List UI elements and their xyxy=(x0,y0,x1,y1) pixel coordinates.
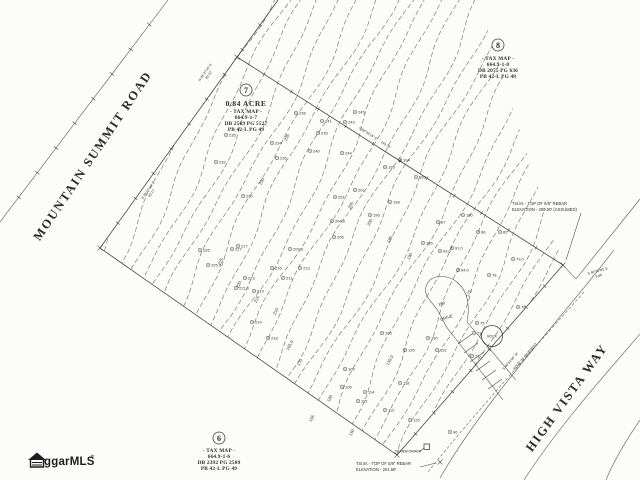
spot-elevation-value: 217 xyxy=(241,244,248,249)
tbm-upper-line1: T.B.M. - TOP OF 5/8" REBAR xyxy=(512,201,567,206)
spot-elevation-value: 216 xyxy=(275,266,282,271)
contour-line xyxy=(0,0,220,480)
survey-tick xyxy=(134,197,138,200)
contour-line xyxy=(117,0,380,480)
contour-elevation-label: 155 xyxy=(308,413,316,422)
bearing-northeast-text: S 50°36'15" E xyxy=(358,126,378,141)
spot-elevation-value: 227 xyxy=(235,247,242,252)
contour-line xyxy=(314,0,573,480)
road-name-mountain-summit: MOUNTAIN SUMMIT ROAD xyxy=(31,68,155,243)
survey-plat-sheet: ROCK TRANSFORMER 23824123923424023623523… xyxy=(0,0,640,480)
spot-elevation-dot xyxy=(370,215,371,216)
survey-tick xyxy=(187,123,191,126)
topographic-contours xyxy=(0,0,640,480)
contour-line xyxy=(19,0,279,480)
spot-elevation-dot xyxy=(272,268,273,269)
contour-elevation-label: 135.0 xyxy=(385,354,395,366)
rebar-monuments xyxy=(98,55,566,465)
spot-elevation-value: 232 xyxy=(219,160,226,165)
spot-elevation-dot xyxy=(243,196,244,197)
contour-elevation-labels: 235230225220215210205200195190165.017016… xyxy=(217,132,473,436)
spot-elevation-value: 241 xyxy=(325,119,332,124)
contour-line xyxy=(0,0,123,480)
spot-elevation-value: 78 xyxy=(492,273,497,278)
spot-elevation-dot xyxy=(252,322,253,323)
spot-elevation-dot xyxy=(438,222,439,223)
transformer-symbol xyxy=(424,444,430,450)
survey-tick xyxy=(345,125,347,128)
survey-tick xyxy=(91,97,95,100)
spot-elevation-dot xyxy=(245,278,246,279)
contour-elevation-label: 190 xyxy=(406,251,414,260)
spot-elevation-dot xyxy=(500,232,501,233)
spot-elevation-dot xyxy=(322,121,323,122)
contour-line xyxy=(217,0,481,480)
survey-tick xyxy=(152,172,156,175)
drive-edge-2 xyxy=(452,334,503,400)
spot-elevation-value: 239 xyxy=(321,131,328,136)
spot-elevation-value: 93.0 xyxy=(443,249,452,254)
contour-elevation-label: 170 xyxy=(296,357,304,366)
spot-elevation-dot xyxy=(382,333,383,334)
survey-tick xyxy=(426,177,428,180)
mls-logo: ggarMLS ™ xyxy=(28,453,95,469)
spot-elevation-dot xyxy=(345,369,346,370)
spot-elevation-dot xyxy=(463,215,464,216)
spot-elevation-value: 219 xyxy=(257,289,264,294)
contour-line xyxy=(142,0,403,480)
spot-elevation-dot xyxy=(428,338,429,339)
contour-elevation-label: 160 xyxy=(326,393,334,402)
drive-edge-1 xyxy=(467,322,516,380)
survey-tick xyxy=(205,98,209,101)
spot-elevation-value: 71 xyxy=(475,354,480,359)
plat-drawing: ROCK TRANSFORMER 23824123923424023623523… xyxy=(0,0,640,480)
spot-elevation-value: 206 xyxy=(337,235,344,240)
spot-elevation-dot xyxy=(290,249,291,250)
contour-elevation-label: 150 xyxy=(348,427,356,436)
lot6-plat-book: PB 42-L PG 49 xyxy=(201,466,237,472)
survey-tick xyxy=(110,72,114,75)
survey-tick xyxy=(263,73,265,76)
bearing-west-upper: N 39°37'15" E 93.10' xyxy=(197,62,216,85)
contour-line xyxy=(0,0,155,480)
spot-elevation-dot xyxy=(226,135,227,136)
contour-line xyxy=(0,0,198,480)
contour-line xyxy=(98,0,363,480)
spot-elevation-value: 214 xyxy=(255,320,262,325)
contour-line xyxy=(47,0,309,480)
spot-elevation-value: 235 xyxy=(229,133,236,138)
contour-line xyxy=(439,0,640,480)
bearing-northeast-distance: 244.70' xyxy=(380,140,392,149)
contour-elevation-label: 215 xyxy=(253,294,261,303)
spot-elevation-dot xyxy=(208,265,209,266)
spot-elevation-value: 223 xyxy=(248,276,255,281)
lot6-number: 6 xyxy=(217,434,221,443)
rock-label: ROCK xyxy=(487,335,498,339)
spot-elevation-value: 198 xyxy=(393,200,400,205)
spot-elevation-dot xyxy=(489,275,490,276)
contour-elevation-label: 225 xyxy=(217,256,225,265)
spot-elevation-dot xyxy=(452,248,453,249)
spot-elevation-value: 204.0 xyxy=(335,219,346,224)
contour-line xyxy=(239,0,501,480)
spot-elevation-dot xyxy=(450,432,451,433)
spot-elevation-dot xyxy=(300,268,301,269)
spot-elevation-value: 105 xyxy=(385,331,392,336)
spot-elevation-value: 109 xyxy=(348,367,355,372)
spot-elevation-value: 201 xyxy=(358,188,365,193)
road-edge-high-vista-3 xyxy=(606,420,640,480)
contour-elevation-label: 235 xyxy=(283,132,291,141)
survey-tick xyxy=(317,107,319,110)
spot-elevation-value: 106 xyxy=(345,385,352,390)
contour-line xyxy=(400,0,640,480)
spot-elevation-dot xyxy=(232,249,233,250)
lot8-plat-book: PB 42-L PG 49 xyxy=(480,74,516,80)
spot-elevation-dot xyxy=(518,307,519,308)
spot-elevation-value: 221.0 xyxy=(239,286,250,291)
spot-elevation-dot xyxy=(477,323,478,324)
spot-elevation-value: 244 xyxy=(345,151,352,156)
spot-elevation-dot xyxy=(268,338,269,339)
contour-line xyxy=(37,0,298,480)
spot-elevation-dot xyxy=(272,143,273,144)
bearing-west-lower: N 39°37'15" E 92.17' xyxy=(140,180,159,203)
spot-elevation-dot xyxy=(474,333,475,334)
bearing-east-tie: S 40°20'00" E 9.86' xyxy=(587,266,610,280)
spot-elevation-dot xyxy=(385,410,386,411)
spot-elevation-dot xyxy=(390,202,391,203)
spot-elevation-value: 79.0 xyxy=(516,257,525,262)
spot-elevation-value: 230 xyxy=(246,194,253,199)
spot-elevation-points: 2382412392342402362352322302452432442511… xyxy=(198,110,526,435)
contour-elevation-label: 165.0 xyxy=(285,339,295,351)
spot-elevation-value: 195 xyxy=(388,165,395,170)
road-edge-high-vista-2 xyxy=(524,334,640,480)
survey-tick xyxy=(453,194,455,197)
spot-elevation-value: 87 xyxy=(441,220,446,225)
spot-elevation-value: 88 xyxy=(481,230,486,235)
spot-elevation-dot xyxy=(335,197,336,198)
spot-elevation-value: 251 xyxy=(338,195,345,200)
spot-elevation-value: 150 xyxy=(431,336,438,341)
spot-elevation-value: 125 xyxy=(413,418,420,423)
spot-elevation-value: 180 xyxy=(466,213,473,218)
spot-elevation-dot xyxy=(355,112,356,113)
spot-elevation-dot xyxy=(216,162,217,163)
survey-tick xyxy=(116,222,120,225)
spot-elevation-dot xyxy=(200,250,201,251)
spot-elevation-dot xyxy=(283,278,284,279)
tbm-upper-line2: ELEVATION - 200.00' (ASSUMED) xyxy=(512,207,577,212)
contour-line xyxy=(0,0,98,480)
lot8-number: 8 xyxy=(496,41,500,50)
survey-tick xyxy=(147,23,151,26)
drive-step xyxy=(488,379,502,389)
spot-elevation-dot xyxy=(332,221,333,222)
spot-elevation-value: 226 xyxy=(203,248,210,253)
lot7-acreage: 0.84 ACRE xyxy=(226,99,267,108)
spot-elevation-dot xyxy=(416,177,417,178)
spot-elevation-value: 209.0 xyxy=(293,247,304,252)
contour-line xyxy=(0,0,141,480)
survey-tick xyxy=(129,48,133,51)
spot-elevation-value: 112 xyxy=(388,408,395,413)
spot-elevation-dot xyxy=(254,291,255,292)
survey-tick xyxy=(508,229,510,232)
tbm-lower-line2: ELEVATION - 201.58' xyxy=(356,467,396,472)
spot-elevation-dot xyxy=(345,122,346,123)
survey-tick xyxy=(535,246,537,249)
spot-elevation-dot xyxy=(400,160,401,161)
contour-elevation-label: 205 xyxy=(347,200,355,209)
spot-elevation-dot xyxy=(405,350,406,351)
spot-elevation-dot xyxy=(342,153,343,154)
drive-turnaround-loop xyxy=(425,276,468,334)
spot-elevation-dot xyxy=(365,392,366,393)
spot-elevation-value: 115 xyxy=(361,399,368,404)
survey-tick xyxy=(54,146,58,149)
house-body xyxy=(31,460,44,467)
contour-line xyxy=(61,0,321,480)
spot-elevation-dot xyxy=(472,356,473,357)
spot-elevation-value: 245 xyxy=(358,110,365,115)
mls-logo-text: ggarMLS xyxy=(44,456,95,468)
spot-elevation-dot xyxy=(410,420,411,421)
tbm-lower-leader xyxy=(420,463,436,467)
spot-elevation-dot xyxy=(355,190,356,191)
survey-tick xyxy=(17,196,21,199)
contour-elevation-label: 200 xyxy=(366,217,374,226)
spot-elevation-value: 118 xyxy=(403,381,410,386)
spot-elevation-value: 196 xyxy=(373,213,380,218)
spot-elevation-dot xyxy=(478,232,479,233)
spot-elevation-dot xyxy=(310,151,311,152)
spot-elevation-value: 185 xyxy=(426,241,433,246)
spot-elevation-value: 73 xyxy=(477,331,482,336)
contour-line xyxy=(0,0,187,480)
spot-elevation-value: 94.0 xyxy=(461,268,470,273)
spot-elevation-dot xyxy=(400,383,401,384)
spot-elevation-value: 114 xyxy=(368,390,375,395)
lot7-plat-book: PB 42-L PG 49 xyxy=(228,127,264,133)
spot-elevation-value: 238 xyxy=(299,111,306,116)
survey-tick xyxy=(290,90,292,93)
spot-elevation-value: 135 xyxy=(408,348,415,353)
spot-elevation-value: 194 xyxy=(403,158,410,163)
spot-elevation-value: 218 xyxy=(271,336,278,341)
spot-elevation-dot xyxy=(277,158,278,159)
drive-contour-label: 180 xyxy=(437,300,446,307)
contour-elevation-label: 230 xyxy=(258,176,266,185)
lot7-number: 7 xyxy=(244,86,248,95)
survey-tick xyxy=(258,24,262,27)
spot-elevation-value: 243 xyxy=(348,120,355,125)
drive-label: DRIVE xyxy=(440,313,454,322)
contour-line xyxy=(160,0,423,480)
spot-elevation-value: 91.0 xyxy=(455,246,464,251)
spot-elevation-dot xyxy=(296,113,297,114)
spot-elevation-value: 211 xyxy=(286,276,293,281)
spot-elevation-dot xyxy=(342,387,343,388)
bearing-east-tie-distance: 9.86' xyxy=(595,273,603,279)
spot-elevation-value: 96 xyxy=(453,430,458,435)
drive-step xyxy=(458,334,472,344)
spot-elevation-value: 213 xyxy=(303,266,310,271)
spot-elevation-dot xyxy=(385,167,386,168)
spot-elevation-dot xyxy=(318,133,319,134)
spot-elevation-dot xyxy=(358,401,359,402)
spot-elevation-value: 152 xyxy=(440,348,447,353)
spot-elevation-value: 240 xyxy=(313,149,320,154)
survey-tick xyxy=(73,122,77,125)
contour-elevation-label: 210 xyxy=(272,306,280,315)
road-name-high-vista: HIGH VISTA WAY xyxy=(523,341,611,454)
drive-step xyxy=(464,343,478,353)
mls-logo-trademark: ™ xyxy=(90,454,95,459)
spot-elevation-value: 75 xyxy=(480,321,485,326)
spot-elevation-dot xyxy=(458,270,459,271)
survey-tick xyxy=(480,211,482,214)
spot-elevation-value: 76 xyxy=(521,305,526,310)
spot-elevation-dot xyxy=(513,259,514,260)
spot-elevation-dot xyxy=(437,350,438,351)
spot-elevation-value: 236 xyxy=(280,156,287,161)
spot-elevation-value: 193 xyxy=(419,175,426,180)
spot-elevation-value: 82 xyxy=(503,230,508,235)
spot-elevation-dot xyxy=(334,237,335,238)
survey-tick xyxy=(35,171,39,174)
spot-elevation-dot xyxy=(423,243,424,244)
spot-elevation-value: 234 xyxy=(275,141,282,146)
right-of-way-line xyxy=(576,199,640,279)
tbm-lower-line1: T.B.M. - TOP OF 5/8" REBAR xyxy=(356,461,411,466)
tbm-upper-leader xyxy=(566,213,581,260)
spot-elevation-dot xyxy=(440,251,441,252)
drive-step xyxy=(482,370,496,380)
